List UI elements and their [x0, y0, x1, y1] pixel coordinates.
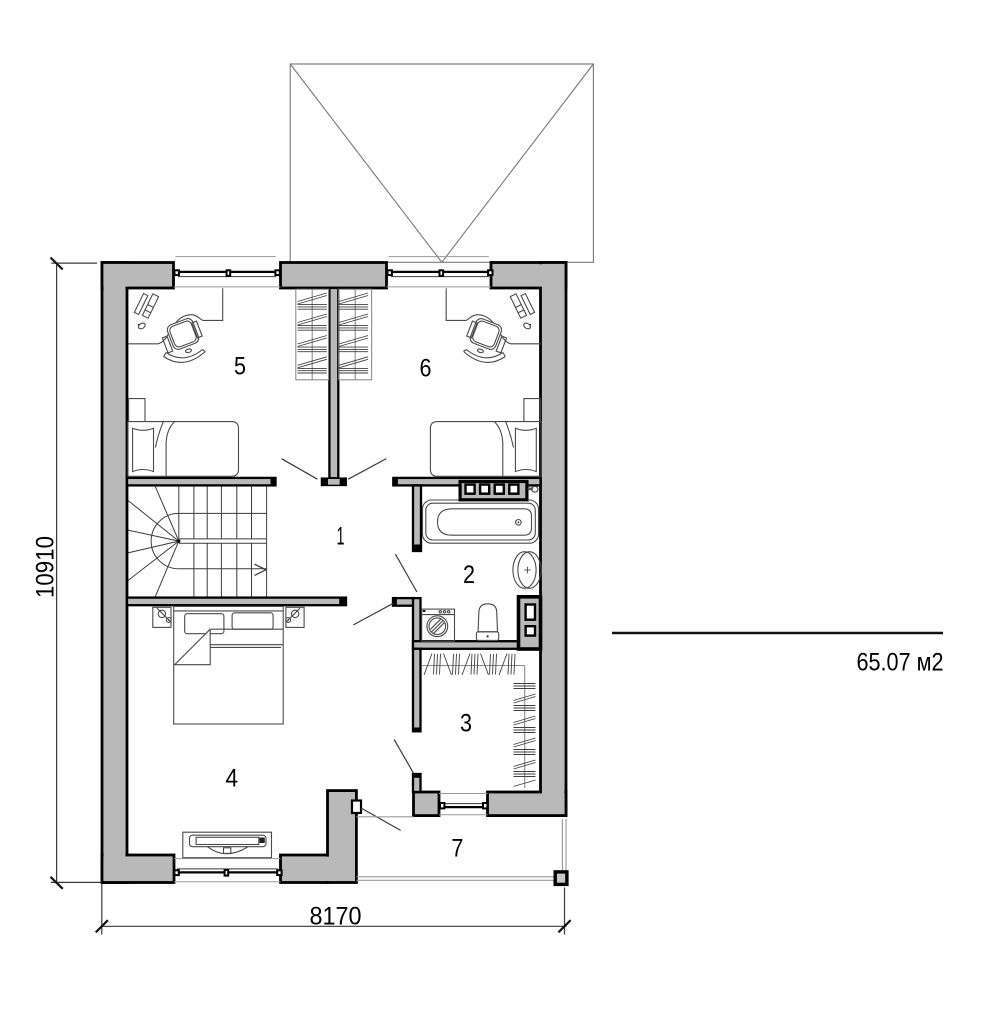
svg-text:3: 3: [460, 710, 472, 738]
svg-text:6: 6: [420, 355, 432, 383]
svg-text:4: 4: [226, 765, 239, 793]
svg-text:8170: 8170: [310, 903, 362, 931]
svg-text:1: 1: [337, 523, 345, 551]
svg-text:2: 2: [463, 561, 475, 589]
svg-text:65.07 м2: 65.07 м2: [857, 649, 944, 677]
svg-text:10910: 10910: [32, 536, 60, 598]
svg-text:7: 7: [451, 835, 463, 863]
svg-text:5: 5: [234, 353, 246, 381]
